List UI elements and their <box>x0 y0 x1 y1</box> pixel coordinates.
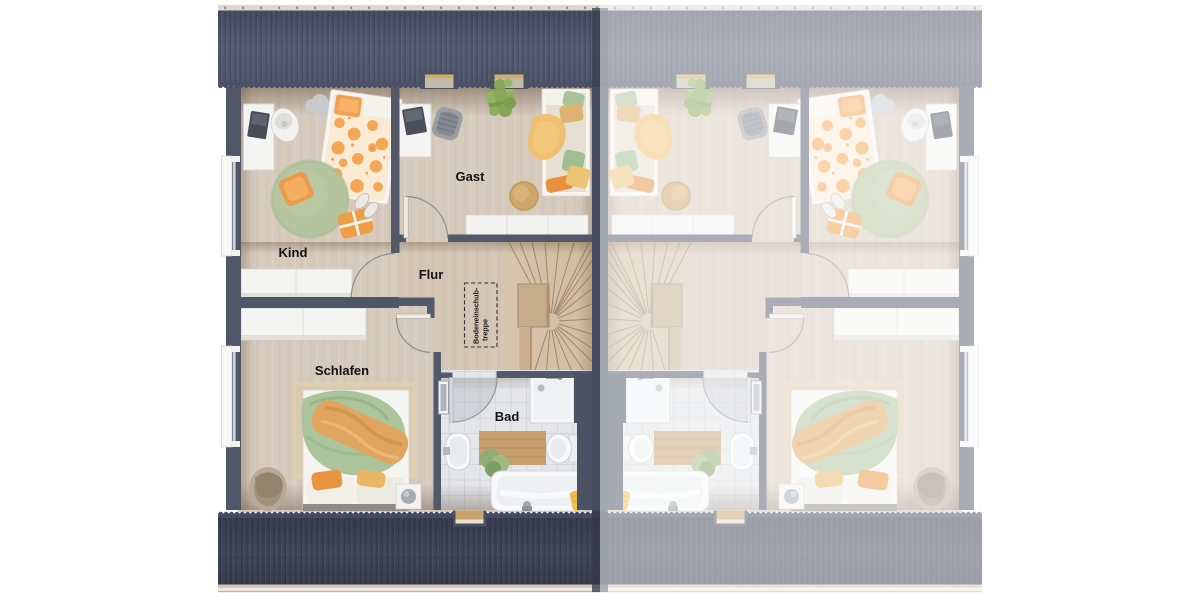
svg-text:Schlafen: Schlafen <box>315 363 369 378</box>
svg-text:Gast: Gast <box>456 169 486 184</box>
svg-text:Bad: Bad <box>495 409 520 424</box>
svg-text:Kind: Kind <box>279 245 308 260</box>
svg-text:Flur: Flur <box>419 267 444 282</box>
svg-text:treppe: treppe <box>481 319 490 341</box>
svg-text:Bodeneinschub-: Bodeneinschub- <box>472 287 481 344</box>
